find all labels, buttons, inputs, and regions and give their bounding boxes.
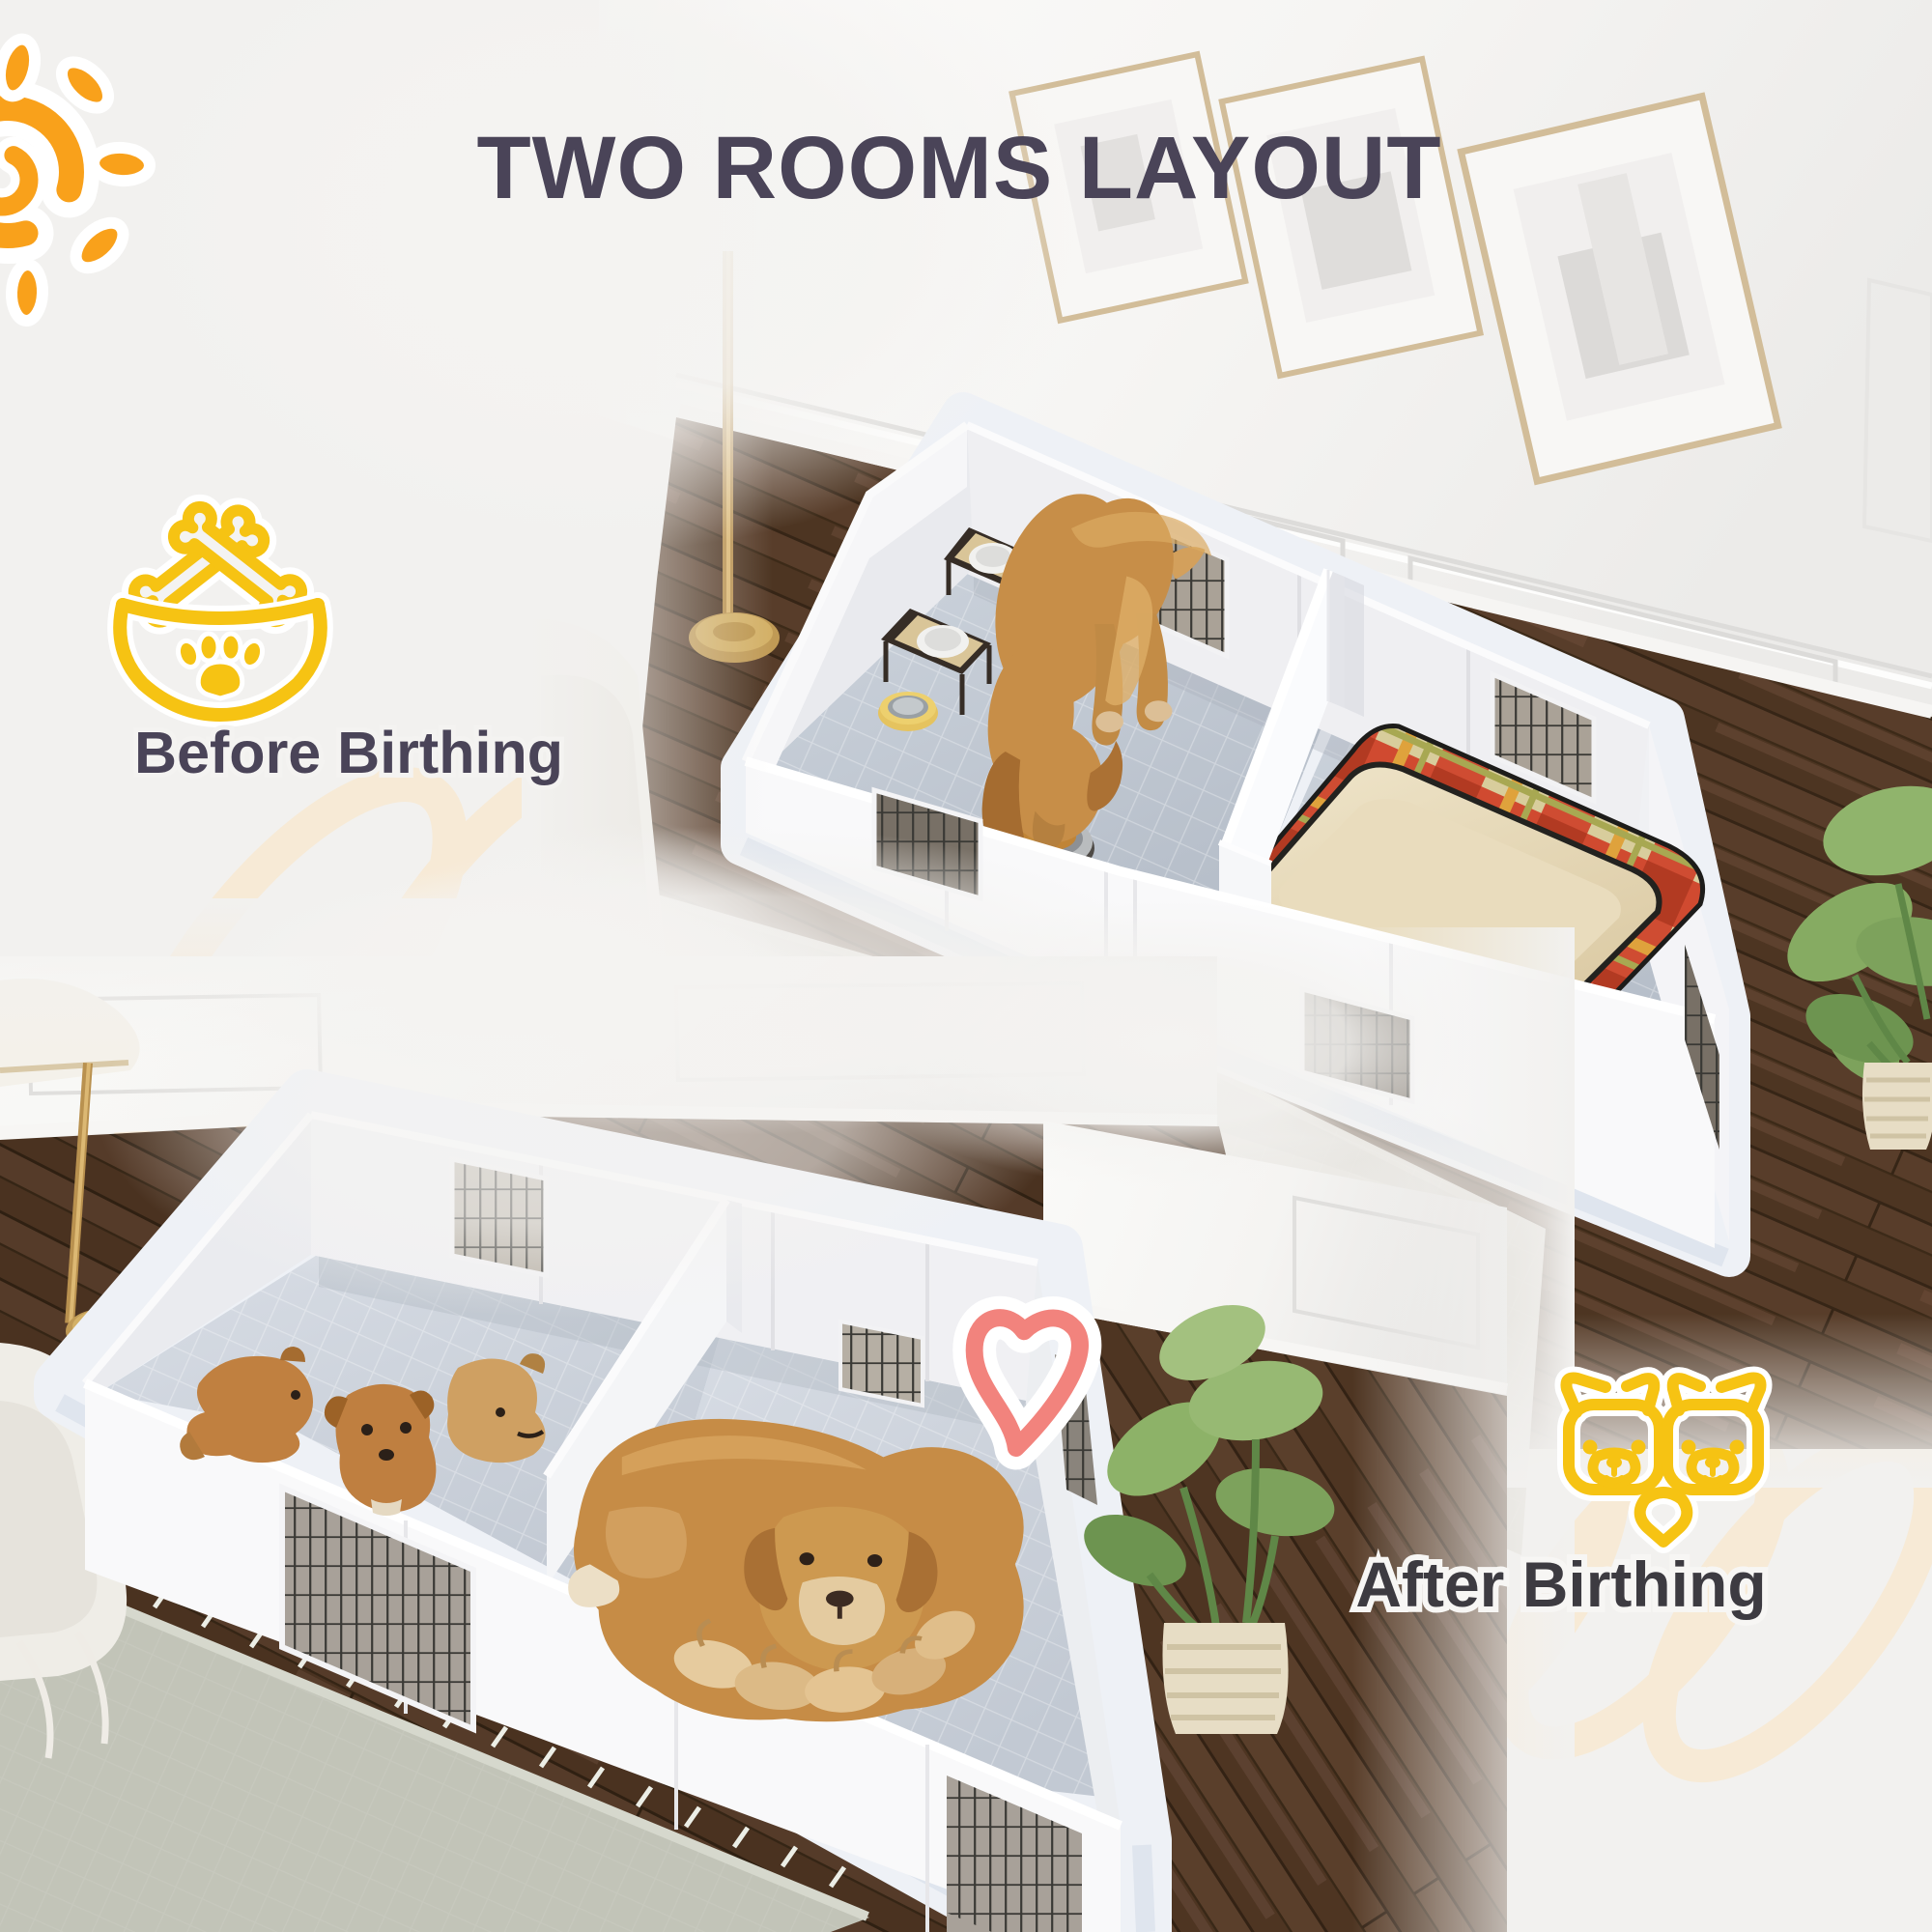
svg-text:Before Birthing: Before Birthing <box>134 720 563 785</box>
svg-text:After Birthing: After Birthing <box>1355 1548 1766 1620</box>
svg-text:TWO ROOMS LAYOUT: TWO ROOMS LAYOUT <box>476 119 1441 217</box>
